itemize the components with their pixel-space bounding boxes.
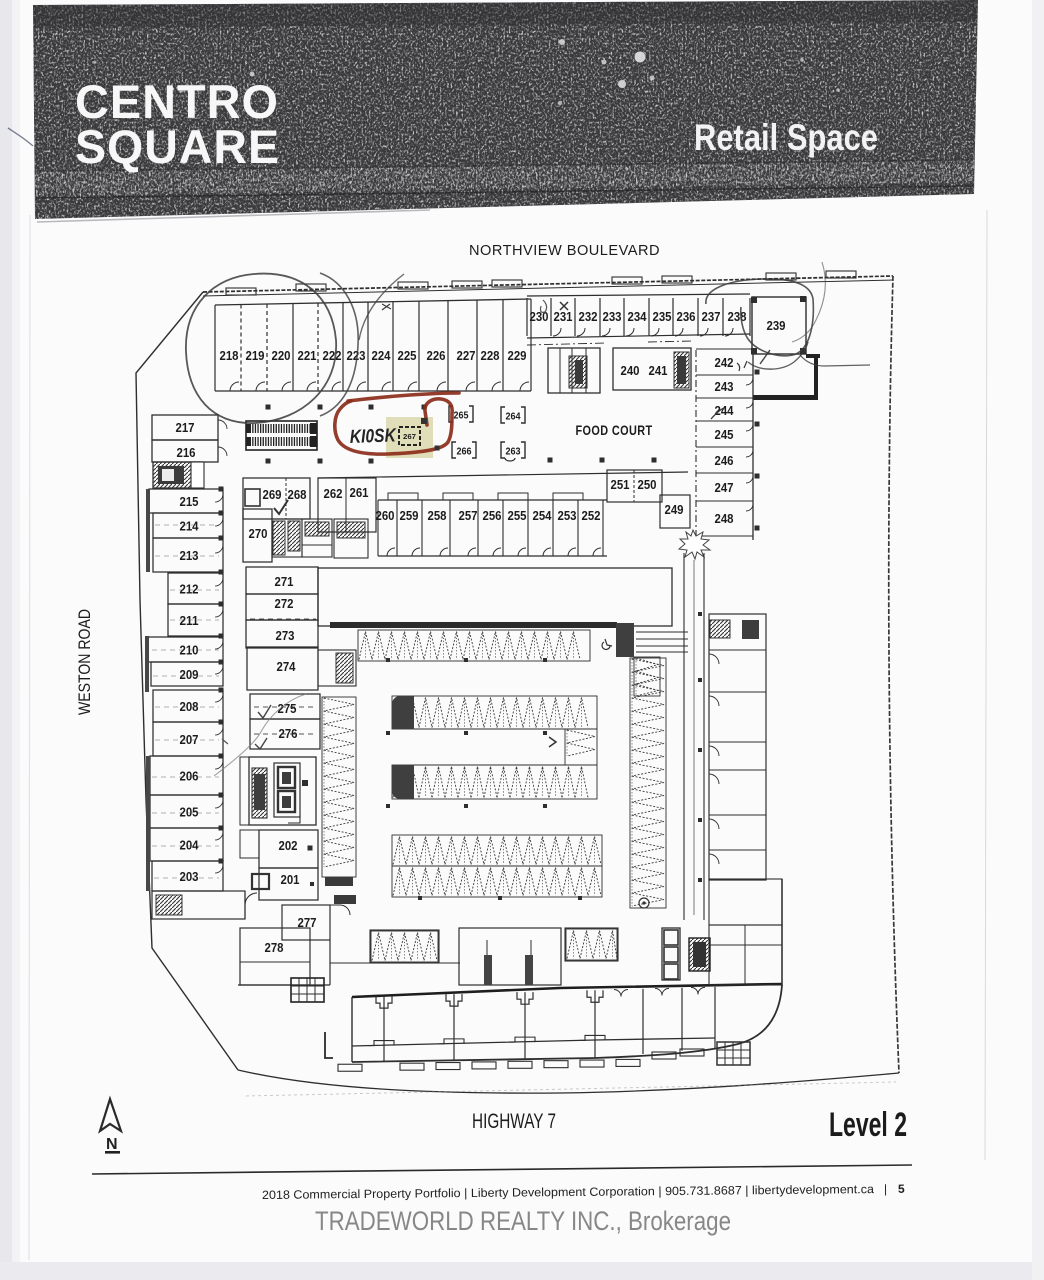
svg-text:SQUARE: SQUARE	[75, 120, 280, 173]
svg-text:Retail Space: Retail Space	[694, 117, 878, 158]
